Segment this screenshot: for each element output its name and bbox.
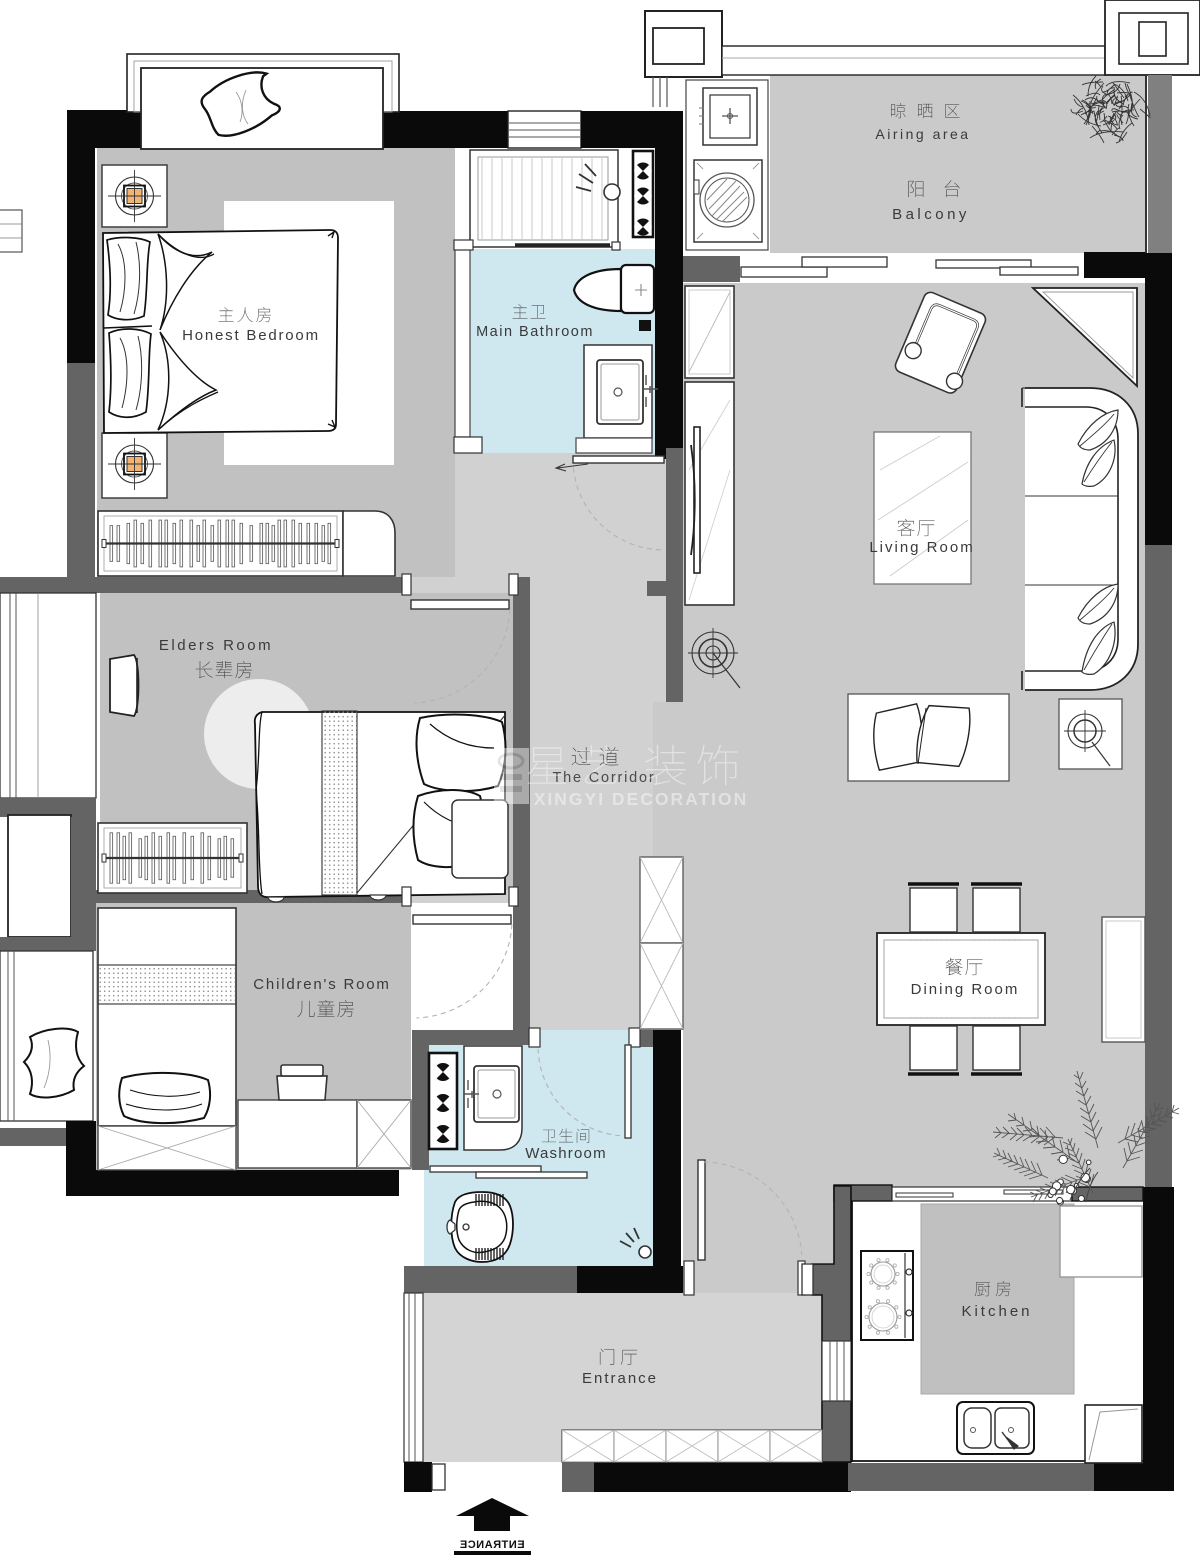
svg-text:Airing area: Airing area <box>875 126 970 142</box>
svg-text:Washroom: Washroom <box>525 1145 607 1162</box>
svg-text:ENTRANCE: ENTRANCE <box>459 1539 524 1551</box>
svg-text:Balcony: Balcony <box>892 206 970 223</box>
svg-text:Living Room: Living Room <box>869 539 974 556</box>
svg-text:Elders Room: Elders Room <box>159 637 273 654</box>
svg-text:XINGYI DECORATION: XINGYI DECORATION <box>534 789 749 809</box>
svg-text:Kitchen: Kitchen <box>961 1303 1032 1320</box>
svg-text:Main Bathroom: Main Bathroom <box>476 324 594 340</box>
svg-text:Honest Bedroom: Honest Bedroom <box>182 327 320 344</box>
svg-text:Dining Room: Dining Room <box>911 981 1020 998</box>
svg-text:Children's Room: Children's Room <box>253 976 390 993</box>
svg-text:Entrance: Entrance <box>582 1370 658 1387</box>
